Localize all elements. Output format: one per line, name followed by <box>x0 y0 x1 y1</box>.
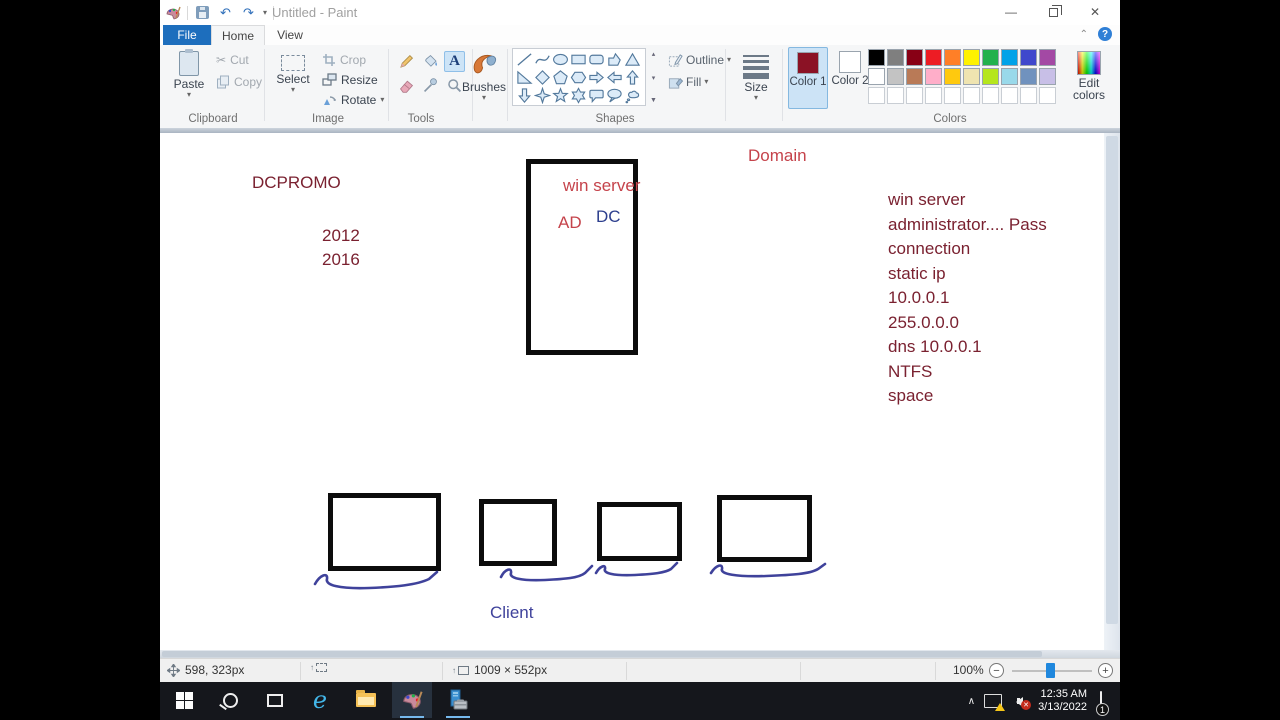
outline-button[interactable]: Outline ▾ <box>668 51 731 69</box>
paint-icon <box>401 689 423 711</box>
network-warning-icon[interactable] <box>984 694 1002 708</box>
tab-view[interactable]: View <box>265 25 315 45</box>
zoom-slider-thumb[interactable] <box>1046 663 1055 678</box>
palette-color-swatch[interactable] <box>1020 68 1037 85</box>
rounded-rectangle-shape-icon[interactable] <box>587 50 605 68</box>
taskbar-clock[interactable]: 12:35 AM 3/13/2022 <box>1038 688 1087 714</box>
pentagon-shape-icon[interactable] <box>551 68 569 86</box>
cut-button[interactable]: ✂ Cut <box>216 51 249 69</box>
search-icon <box>223 693 238 708</box>
edit-colors-button[interactable]: Edit colors <box>1066 48 1112 110</box>
hexagon-shape-icon[interactable] <box>569 68 587 86</box>
triangle-shape-icon[interactable] <box>623 50 641 68</box>
windows-logo-icon <box>176 692 193 709</box>
clipboard-group-label: Clipboard <box>170 113 256 125</box>
palette-empty-slot[interactable] <box>1020 87 1037 104</box>
cursor-position-icon <box>167 664 180 677</box>
zoom-slider[interactable] <box>1012 670 1092 672</box>
palette-color-swatch[interactable] <box>868 68 885 85</box>
fill-shape-icon <box>668 75 683 90</box>
palette-color-swatch[interactable] <box>963 49 980 66</box>
image-group-label: Image <box>278 113 378 125</box>
color-picker-tool-button[interactable] <box>420 75 441 96</box>
palette-color-swatch[interactable] <box>1039 68 1056 85</box>
save-button[interactable] <box>194 4 211 21</box>
ribbon: Paste ▾ ✂ Cut Copy Clipboard Select ▾ Cr… <box>160 45 1120 128</box>
client-monitor-drawing <box>479 499 557 566</box>
fill-tool-button[interactable] <box>420 51 441 72</box>
client-monitor-drawing <box>717 495 812 562</box>
five-point-star-shape-icon[interactable] <box>551 86 569 104</box>
palette-empty-slot[interactable] <box>1001 87 1018 104</box>
tray-show-hidden-icons-button[interactable]: ∧ <box>968 696 975 707</box>
quick-access-toolbar: ↶ ↷ ▾ <box>164 3 274 22</box>
rotate-button[interactable]: Rotate ▾ <box>322 91 384 109</box>
cursor-position-value: 598, 323px <box>185 663 244 677</box>
resize-button[interactable]: Resize <box>322 71 378 89</box>
size-button[interactable]: Size ▾ <box>734 48 778 110</box>
curve-shape-icon[interactable] <box>533 50 551 68</box>
palette-color-swatch[interactable] <box>887 49 904 66</box>
palette-empty-slot[interactable] <box>925 87 942 104</box>
colors-group-label: Colors <box>880 113 1020 125</box>
minimize-button[interactable]: — <box>990 0 1032 23</box>
pencil-tool-button[interactable] <box>396 51 417 72</box>
taskbar-file-explorer[interactable] <box>346 682 386 718</box>
palette-empty-slot[interactable] <box>963 87 980 104</box>
resize-icon <box>322 73 337 87</box>
palette-color-swatch[interactable] <box>963 68 980 85</box>
ellipse-shape-icon[interactable] <box>551 50 569 68</box>
chevron-down-icon: ▾ <box>291 87 295 93</box>
canvas-size-value: 1009 × 552px <box>474 663 547 677</box>
zoom-in-button[interactable]: + <box>1098 663 1113 678</box>
canvas-notes-text: win serveradministrator.... Passconnecti… <box>888 188 1047 409</box>
horizontal-scrollbar[interactable] <box>160 650 1120 658</box>
palette-color-swatch[interactable] <box>906 49 923 66</box>
brushes-button[interactable]: Brushes ▾ <box>460 48 508 110</box>
tab-home[interactable]: Home <box>211 25 265 45</box>
fill-bucket-icon <box>422 53 439 70</box>
palette-color-swatch[interactable] <box>944 49 961 66</box>
cloud-callout-shape-icon[interactable] <box>623 86 641 104</box>
palette-color-swatch[interactable] <box>1001 49 1018 66</box>
palette-color-swatch[interactable] <box>906 68 923 85</box>
undo-button[interactable]: ↶ <box>217 4 234 21</box>
rotate-icon <box>322 93 337 107</box>
arrow-down-shape-icon[interactable] <box>515 86 533 104</box>
vertical-scrollbar[interactable] <box>1104 133 1120 650</box>
restore-button[interactable] <box>1032 0 1074 23</box>
palette-color-swatch[interactable] <box>982 49 999 66</box>
color2-swatch <box>839 51 861 73</box>
line-shape-icon[interactable] <box>515 50 533 68</box>
cut-icon: ✂ <box>216 53 226 67</box>
task-view-button[interactable] <box>255 682 295 718</box>
polygon-shape-icon[interactable] <box>605 50 623 68</box>
palette-empty-slot[interactable] <box>944 87 961 104</box>
start-button[interactable] <box>164 682 204 718</box>
copy-button[interactable]: Copy <box>216 73 262 91</box>
selection-size-icon <box>316 663 327 672</box>
taskbar-server-manager[interactable] <box>438 682 478 718</box>
canvas-text-2012: 2012 <box>322 226 360 246</box>
crop-button[interactable]: Crop <box>322 51 366 69</box>
palette-color-swatch[interactable] <box>925 49 942 66</box>
fill-button[interactable]: Fill ▾ <box>668 73 708 91</box>
chevron-down-icon: ▾ <box>482 95 486 101</box>
color-palette <box>868 49 1058 106</box>
canvas-note-line: NTFS <box>888 360 1047 385</box>
clock-time: 12:35 AM <box>1038 688 1087 701</box>
shapes-gallery-scroll: ▴ ▾ ▼ <box>648 48 659 106</box>
edit-colors-icon <box>1077 51 1101 75</box>
title-bar: ↶ ↷ ▾ Untitled - Paint — ✕ <box>160 0 1120 25</box>
palette-empty-slot[interactable] <box>906 87 923 104</box>
paint-canvas[interactable]: DCPROMO 2012 2016 Domain win server AD D… <box>160 133 1120 658</box>
color2-button[interactable]: Color 2 <box>830 47 870 109</box>
arrow-left-shape-icon[interactable] <box>605 68 623 86</box>
client-monitor-drawing <box>328 493 441 571</box>
four-point-star-shape-icon[interactable] <box>533 86 551 104</box>
diamond-shape-icon[interactable] <box>533 68 551 86</box>
shapes-gallery <box>512 48 646 106</box>
canvas-text-domain: Domain <box>748 146 807 166</box>
system-tray: ∧ ✕ 12:35 AM 3/13/2022 1 <box>968 682 1102 720</box>
canvas-text-client: Client <box>490 603 533 623</box>
text-tool-icon: A <box>449 53 460 70</box>
chevron-down-icon: ▾ <box>704 79 708 85</box>
taskbar-paint[interactable] <box>392 682 432 718</box>
zoom-out-button[interactable]: − <box>989 663 1004 678</box>
palette-color-swatch[interactable] <box>1039 49 1056 66</box>
file-explorer-icon <box>356 693 376 707</box>
brush-icon <box>469 51 499 79</box>
palette-empty-slot[interactable] <box>1039 87 1056 104</box>
clock-date: 3/13/2022 <box>1038 701 1087 714</box>
chevron-down-icon: ▾ <box>754 95 758 101</box>
color1-swatch <box>797 52 819 74</box>
action-center-button[interactable]: 1 <box>1100 692 1102 710</box>
canvas-note-line: administrator.... Pass <box>888 213 1047 238</box>
canvas-note-line: 10.0.0.1 <box>888 286 1047 311</box>
outline-icon <box>668 53 683 68</box>
copy-icon <box>216 75 230 89</box>
eraser-icon <box>398 77 415 94</box>
tools-group-label: Tools <box>376 113 466 125</box>
select-button[interactable]: Select ▾ <box>270 48 316 110</box>
help-icon[interactable]: ? <box>1098 27 1112 41</box>
collapse-ribbon-button[interactable]: ⌃ <box>1080 29 1088 40</box>
six-point-star-shape-icon[interactable] <box>569 86 587 104</box>
internet-explorer-icon: e <box>313 690 327 710</box>
arrow-up-shape-icon[interactable] <box>623 68 641 86</box>
zoom-level-value: 100% <box>953 663 984 677</box>
right-triangle-shape-icon[interactable] <box>515 68 533 86</box>
palette-empty-slot[interactable] <box>868 87 885 104</box>
chevron-down-icon: ▾ <box>187 92 191 98</box>
customize-quick-access-button[interactable]: ▾ <box>263 8 267 17</box>
color1-button[interactable]: Color 1 <box>788 47 828 109</box>
palette-color-swatch[interactable] <box>868 49 885 66</box>
canvas-note-line: static ip <box>888 262 1047 287</box>
chevron-down-icon: ▾ <box>380 97 384 103</box>
canvas-note-line: space <box>888 384 1047 409</box>
status-bar: 598, 323px ↑ ↑ 1009 × 552px 100% − + <box>160 658 1120 682</box>
horizontal-scrollbar-thumb[interactable] <box>162 651 1042 657</box>
select-icon <box>281 55 305 71</box>
canvas-note-line: connection <box>888 237 1047 262</box>
crop-icon <box>322 53 336 67</box>
notification-badge: 1 <box>1096 703 1109 716</box>
canvas-text-ad: AD <box>558 213 582 233</box>
canvas-text-2016: 2016 <box>322 250 360 270</box>
volume-muted-icon[interactable]: ✕ <box>1011 693 1029 709</box>
shapes-group-label: Shapes <box>535 113 695 125</box>
client-monitor-drawing <box>597 502 682 561</box>
palette-color-swatch[interactable] <box>944 68 961 85</box>
palette-color-swatch[interactable] <box>887 68 904 85</box>
palette-color-swatch[interactable] <box>982 68 999 85</box>
canvas-note-line: win server <box>888 188 1047 213</box>
captured-screen: ↶ ↷ ▾ Untitled - Paint — ✕ File Home Vie… <box>160 0 1120 720</box>
paste-button[interactable]: Paste ▾ <box>168 48 210 110</box>
canvas-size-icon <box>458 666 469 675</box>
taskbar: e ∧ ✕ 12:35 AM 3/13/2022 1 <box>160 682 1120 720</box>
palette-empty-slot[interactable] <box>887 87 904 104</box>
vertical-scrollbar-thumb[interactable] <box>1106 136 1118 624</box>
canvas-text-win-server: win server <box>563 176 640 196</box>
palette-empty-slot[interactable] <box>982 87 999 104</box>
window-title: Untitled - Paint <box>272 5 357 20</box>
canvas-note-line: 255.0.0.0 <box>888 311 1047 336</box>
pencil-icon <box>398 53 415 70</box>
canvas-text-dcpromo: DCPROMO <box>252 173 341 193</box>
palette-color-swatch[interactable] <box>1020 49 1037 66</box>
chevron-down-icon: ▾ <box>727 57 731 63</box>
redo-button[interactable]: ↷ <box>240 4 257 21</box>
shapes-scroll-up-button[interactable]: ▴ <box>652 50 656 58</box>
rounded-callout-shape-icon[interactable] <box>587 86 605 104</box>
taskbar-internet-explorer[interactable]: e <box>300 682 340 718</box>
close-button[interactable]: ✕ <box>1074 0 1116 23</box>
oval-callout-shape-icon[interactable] <box>605 86 623 104</box>
arrow-right-shape-icon[interactable] <box>587 68 605 86</box>
palette-color-swatch[interactable] <box>925 68 942 85</box>
paste-icon <box>179 51 199 76</box>
rectangle-shape-icon[interactable] <box>569 50 587 68</box>
ribbon-tab-row: File Home View <box>160 25 1120 45</box>
palette-color-swatch[interactable] <box>1001 68 1018 85</box>
canvas-note-line: dns 10.0.0.1 <box>888 335 1047 360</box>
paint-app-icon <box>164 4 181 21</box>
eraser-tool-button[interactable] <box>396 75 417 96</box>
task-view-icon <box>267 694 283 707</box>
eyedropper-icon <box>422 77 439 94</box>
shapes-gallery-expand-button[interactable]: ▼ <box>650 97 657 104</box>
taskbar-search-button[interactable] <box>210 682 250 718</box>
server-manager-icon <box>446 688 470 712</box>
divider <box>187 6 188 20</box>
canvas-text-dc: DC <box>596 207 621 227</box>
size-icon <box>743 55 769 79</box>
shapes-scroll-down-button[interactable]: ▾ <box>652 74 656 82</box>
tab-file[interactable]: File <box>163 25 211 45</box>
